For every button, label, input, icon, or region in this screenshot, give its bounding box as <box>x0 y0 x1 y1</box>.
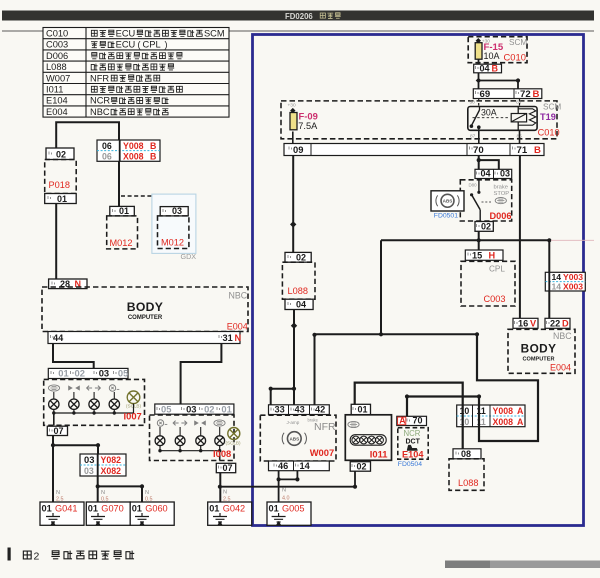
svg-text:03: 03 <box>186 403 196 414</box>
svg-text:D: D <box>562 319 569 329</box>
svg-text:SCM: SCM <box>204 29 225 39</box>
svg-text:W007: W007 <box>46 73 70 83</box>
svg-text:2: 2 <box>34 551 40 563</box>
svg-text:ABS: ABS <box>289 436 299 441</box>
svg-text:E004: E004 <box>550 363 571 373</box>
svg-text:NFR: NFR <box>90 73 109 83</box>
svg-text:N: N <box>145 490 149 496</box>
svg-text:G005: G005 <box>282 504 304 514</box>
svg-text:71: 71 <box>517 145 528 156</box>
svg-text:01: 01 <box>119 206 129 216</box>
svg-text:NCR: NCR <box>404 429 421 438</box>
svg-text:B: B <box>533 89 540 100</box>
svg-text:06: 06 <box>102 141 112 151</box>
svg-text:D006: D006 <box>490 211 512 221</box>
svg-text:02: 02 <box>357 462 367 472</box>
svg-text:N: N <box>282 488 286 494</box>
svg-text:N: N <box>56 490 60 496</box>
svg-text:NBC: NBC <box>229 291 248 301</box>
svg-text:GDX: GDX <box>181 252 197 261</box>
svg-text:H: H <box>489 250 496 260</box>
svg-text:04: 04 <box>481 169 491 179</box>
svg-text:+30: +30 <box>288 103 296 109</box>
svg-text:42: 42 <box>315 405 325 415</box>
svg-text:02: 02 <box>56 150 66 160</box>
svg-text:10: 10 <box>460 417 470 427</box>
svg-text:NBC: NBC <box>90 107 110 117</box>
svg-text:7.5A: 7.5A <box>298 121 318 131</box>
svg-text:ECU: ECU <box>116 29 136 39</box>
svg-text:BODY: BODY <box>127 300 163 314</box>
svg-text:T19: T19 <box>540 112 556 122</box>
svg-text:30: 30 <box>470 99 476 105</box>
svg-text:05: 05 <box>161 403 171 414</box>
svg-text:G041: G041 <box>55 504 77 514</box>
svg-text:02: 02 <box>204 403 214 414</box>
svg-text:COMPUTER: COMPUTER <box>128 315 163 321</box>
svg-text:Y008: Y008 <box>493 406 514 416</box>
svg-text:03: 03 <box>500 169 510 179</box>
svg-text:FD0206: FD0206 <box>285 12 313 21</box>
svg-text:CPL: CPL <box>489 265 505 274</box>
svg-text:Y008: Y008 <box>123 141 144 151</box>
svg-text:15: 15 <box>472 250 482 260</box>
svg-text:B: B <box>492 63 499 73</box>
svg-text:CPL: CPL <box>143 40 161 50</box>
svg-text:NBC: NBC <box>553 331 572 341</box>
svg-text:SCM: SCM <box>543 103 561 112</box>
svg-text:A: A <box>517 417 524 427</box>
svg-text:01: 01 <box>269 504 279 514</box>
svg-text:70: 70 <box>473 145 484 156</box>
svg-text:08: 08 <box>461 449 471 459</box>
svg-text:03: 03 <box>84 466 94 476</box>
svg-text:A: A <box>399 416 406 426</box>
svg-text:01: 01 <box>58 368 68 379</box>
svg-text:NCR: NCR <box>90 96 110 106</box>
svg-text:03: 03 <box>84 454 94 465</box>
svg-text:B: B <box>150 141 156 151</box>
svg-text:G070: G070 <box>101 504 123 514</box>
svg-text:P018: P018 <box>49 180 70 190</box>
svg-text:E004: E004 <box>227 322 248 332</box>
svg-text:04: 04 <box>480 63 490 73</box>
svg-text:01: 01 <box>221 403 231 414</box>
svg-text:09: 09 <box>293 144 303 155</box>
svg-text:A: A <box>517 406 524 416</box>
svg-text:N: N <box>235 333 242 343</box>
svg-text:E104: E104 <box>46 96 68 106</box>
svg-text:C010: C010 <box>504 52 526 63</box>
svg-text:ECU: ECU <box>116 40 136 50</box>
svg-text:07: 07 <box>223 463 233 473</box>
svg-text:L088: L088 <box>46 62 67 72</box>
svg-text:G042: G042 <box>223 504 245 514</box>
svg-text:D80: D80 <box>469 182 478 187</box>
svg-text:02: 02 <box>296 252 306 262</box>
svg-text:(SCLB): (SCLB) <box>225 440 241 445</box>
svg-text:02: 02 <box>75 368 85 379</box>
svg-text:N: N <box>101 490 105 496</box>
svg-text:X082: X082 <box>101 466 122 476</box>
svg-text:N: N <box>223 490 227 496</box>
svg-text:D006: D006 <box>46 51 68 61</box>
svg-text:STOP: STOP <box>494 191 510 197</box>
svg-text:C010: C010 <box>46 29 68 39</box>
svg-text:22: 22 <box>550 319 560 329</box>
svg-text:Y082: Y082 <box>101 455 122 465</box>
svg-text:86: 86 <box>516 99 522 105</box>
svg-text:43: 43 <box>295 405 305 415</box>
svg-text:(: ( <box>138 40 141 50</box>
svg-text:10: 10 <box>460 406 470 416</box>
svg-text:04: 04 <box>296 300 306 310</box>
svg-text:L088: L088 <box>458 478 478 488</box>
svg-text:B: B <box>150 152 156 162</box>
svg-text:05: 05 <box>118 368 128 379</box>
svg-text:FD0504: FD0504 <box>398 461 422 468</box>
svg-text:ABS: ABS <box>443 199 453 204</box>
svg-text:E004: E004 <box>46 107 68 117</box>
svg-text:I008: I008 <box>213 448 231 459</box>
svg-text:L088: L088 <box>288 286 308 296</box>
svg-text:I011: I011 <box>370 448 388 459</box>
svg-text:C003: C003 <box>46 40 68 50</box>
svg-text:01: 01 <box>209 504 219 514</box>
svg-text:33: 33 <box>275 405 285 415</box>
svg-text:30A: 30A <box>481 108 497 118</box>
svg-text:87: 87 <box>470 134 476 140</box>
svg-text:X003: X003 <box>563 281 583 291</box>
svg-text:C010: C010 <box>538 128 560 138</box>
svg-text:X008: X008 <box>123 152 144 162</box>
svg-text:03: 03 <box>99 368 109 379</box>
svg-text:07: 07 <box>54 426 64 436</box>
svg-text:M012: M012 <box>161 238 184 248</box>
svg-text:SCM: SCM <box>509 38 527 47</box>
svg-text:46: 46 <box>278 461 288 471</box>
svg-text:03: 03 <box>172 206 182 216</box>
svg-text:DCT: DCT <box>406 439 421 446</box>
svg-text:31: 31 <box>223 333 233 343</box>
svg-text:W007: W007 <box>310 447 335 458</box>
svg-text:I011: I011 <box>46 85 63 95</box>
svg-text:E104: E104 <box>402 450 424 460</box>
svg-text:NFR: NFR <box>314 421 336 433</box>
svg-text:C003: C003 <box>484 294 506 304</box>
svg-text:brake: brake <box>494 185 509 191</box>
svg-text:I007: I007 <box>124 411 142 422</box>
svg-text:44: 44 <box>53 333 64 343</box>
svg-text:FD0501: FD0501 <box>434 212 458 219</box>
svg-text:01: 01 <box>358 405 368 415</box>
svg-text:01: 01 <box>42 504 52 514</box>
svg-text:02: 02 <box>481 222 491 232</box>
svg-text:14: 14 <box>552 281 562 291</box>
svg-text:V: V <box>530 319 537 329</box>
svg-text:G060: G060 <box>145 504 167 514</box>
svg-text:01: 01 <box>88 504 98 514</box>
svg-text:M012: M012 <box>110 238 133 248</box>
svg-text:B: B <box>534 145 541 156</box>
svg-text:01: 01 <box>132 504 142 514</box>
svg-text:01: 01 <box>57 194 67 204</box>
svg-text:70: 70 <box>413 416 423 426</box>
svg-text:16: 16 <box>518 319 528 329</box>
svg-text:69: 69 <box>480 89 491 100</box>
svg-text:J-amp: J-amp <box>287 420 300 425</box>
svg-text:10A: 10A <box>484 51 500 61</box>
svg-text:X008: X008 <box>493 417 514 427</box>
svg-text:14: 14 <box>300 461 311 471</box>
svg-text:72: 72 <box>520 89 531 100</box>
svg-text:4.0: 4.0 <box>282 496 290 502</box>
svg-text:06: 06 <box>102 152 112 162</box>
svg-text:): ) <box>164 40 167 50</box>
svg-text:BODY: BODY <box>521 342 557 356</box>
